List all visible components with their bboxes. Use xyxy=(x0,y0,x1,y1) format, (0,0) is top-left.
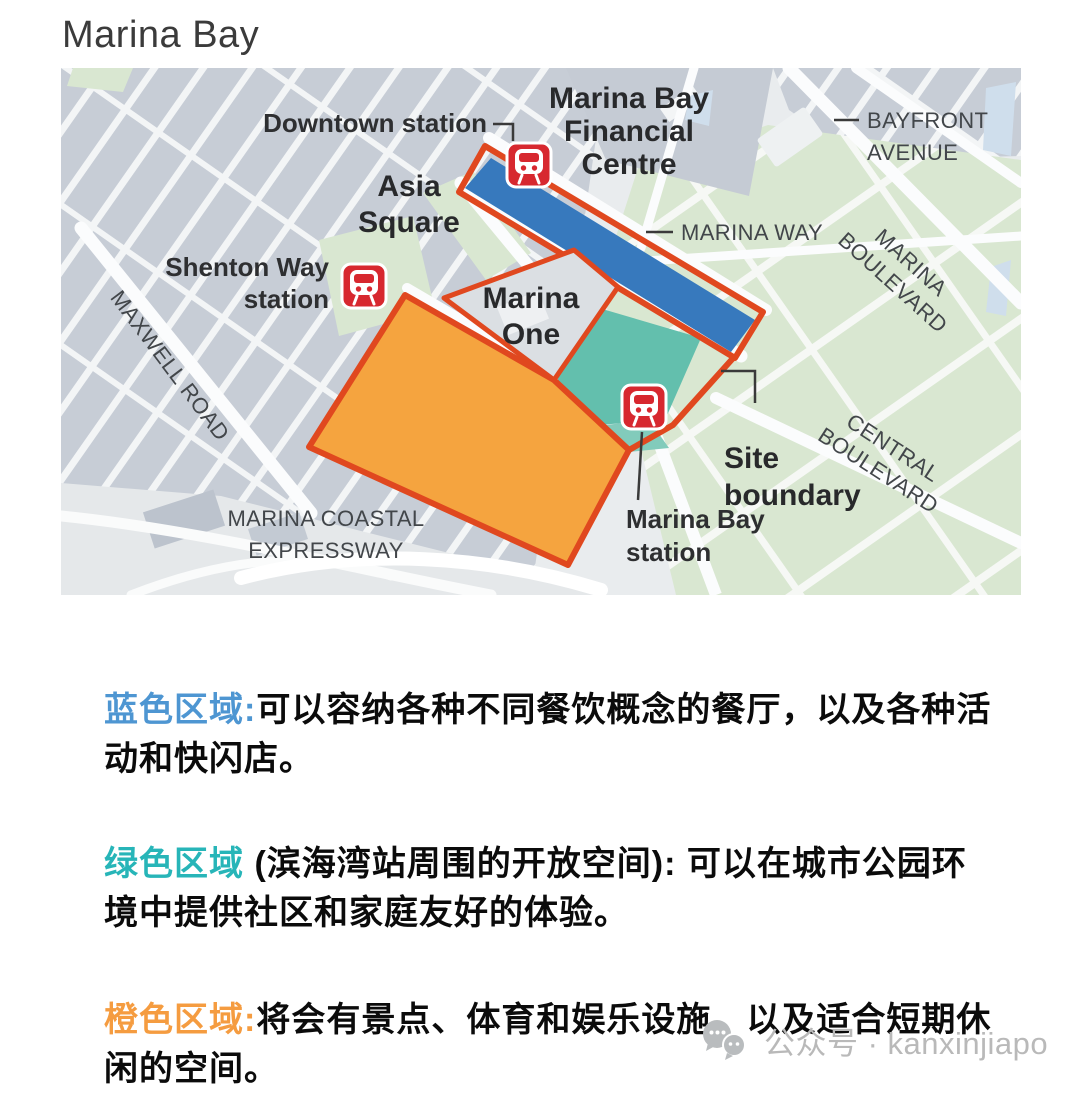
label-mce: EXPRESSWAY xyxy=(248,538,404,563)
wechat-icon xyxy=(700,1019,752,1063)
map-canvas: Downtown station Marina Bay Financial Ce… xyxy=(61,68,1021,595)
label-marina-bay-station: station xyxy=(626,537,711,567)
label-shenton-way-station: station xyxy=(244,284,329,314)
label-mbfc: Marina Bay xyxy=(549,82,709,115)
legend-orange-heading: 橙色区域: xyxy=(104,1001,256,1039)
legend-green-heading: 绿色区域 xyxy=(104,845,244,883)
label-marina-one: Marina xyxy=(483,282,580,315)
marina-bay-station-icon xyxy=(622,385,666,429)
shenton-way-station-icon xyxy=(342,264,386,308)
label-bayfront-avenue: BAYFRONT xyxy=(867,108,988,133)
label-mce: MARINA COASTAL xyxy=(227,506,424,531)
label-mbfc: Financial xyxy=(564,115,694,148)
label-bayfront-avenue: AVENUE xyxy=(867,140,958,165)
watermark-text: 公众号 · kanxinjiapo xyxy=(764,1018,1048,1063)
legend-blue-zone: 蓝色区域:可以容纳各种不同餐饮概念的餐厅，以及各种活动和快闪店。 xyxy=(104,686,992,784)
label-downtown-station: Downtown station xyxy=(263,108,487,138)
marina-bay-map: Downtown station Marina Bay Financial Ce… xyxy=(61,68,1021,595)
watermark: 公众号 · kanxinjiapo xyxy=(700,1018,1048,1063)
downtown-station-icon xyxy=(507,143,551,187)
label-shenton-way-station: Shenton Way xyxy=(165,252,329,282)
label-marina-way: MARINA WAY xyxy=(681,220,823,245)
legend-blue-heading: 蓝色区域: xyxy=(104,691,256,729)
legend-green-zone: 绿色区域 (滨海湾站周围的开放空间): 可以在城市公园环境中提供社区和家庭友好的… xyxy=(104,840,992,938)
label-marina-bay-station: Marina Bay xyxy=(626,504,765,534)
page-title: Marina Bay xyxy=(62,14,259,57)
label-asia-square: Asia xyxy=(377,170,441,203)
label-mbfc: Centre xyxy=(581,148,676,181)
label-asia-square: Square xyxy=(358,206,460,239)
label-site-boundary: Site xyxy=(724,442,779,475)
label-marina-one: One xyxy=(502,318,560,351)
